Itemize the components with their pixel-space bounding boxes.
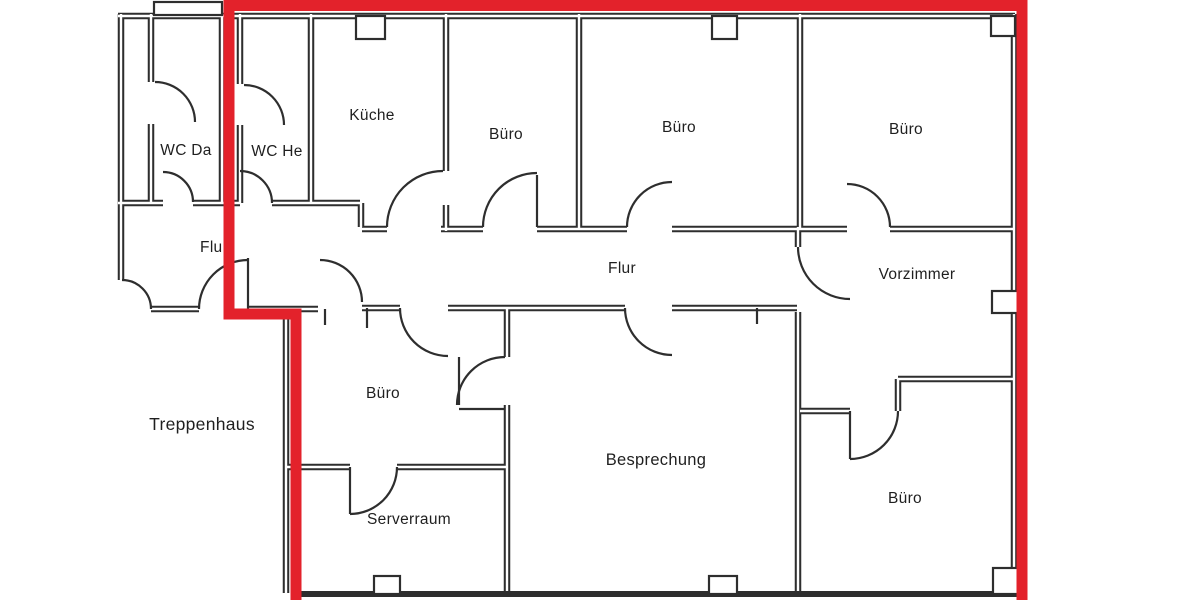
stub-bottom-right <box>993 568 1018 594</box>
room-label-besprechung: Besprechung <box>606 451 707 469</box>
room-label-buero-top-right: Büro <box>889 121 923 138</box>
room-label-kueche: Küche <box>349 107 394 124</box>
duct-top-left <box>154 2 222 15</box>
room-label-vorzimmer: Vorzimmer <box>879 266 956 283</box>
duct-top-right <box>991 16 1015 36</box>
room-label-buero-top-middle: Büro <box>662 119 696 136</box>
room-label-buero-middle-left: Büro <box>366 385 400 402</box>
room-label-wc-he: WC He <box>251 143 302 160</box>
duct-buero-top-middle <box>712 16 737 39</box>
room-label-flur-main: Flur <box>608 260 636 277</box>
floor-plan: WC Da WC He Küche Büro Büro Büro Flur Fl… <box>0 0 1200 600</box>
room-label-serverraum: Serverraum <box>367 511 451 528</box>
room-label-buero-bottom-right: Büro <box>888 490 922 507</box>
floor-plan-svg: WC Da WC He Küche Büro Büro Büro Flur Fl… <box>0 0 1200 600</box>
pillar-serverraum <box>374 576 400 594</box>
stub-vorzimmer-right <box>992 291 1018 313</box>
room-label-buero-top-left: Büro <box>489 126 523 143</box>
duct-kueche <box>356 16 385 39</box>
room-label-treppenhaus: Treppenhaus <box>149 414 255 434</box>
pillar-besprechung <box>709 576 737 594</box>
walls <box>118 14 1018 594</box>
room-label-wc-da: WC Da <box>160 142 212 159</box>
highlight-boundary <box>229 6 1022 600</box>
